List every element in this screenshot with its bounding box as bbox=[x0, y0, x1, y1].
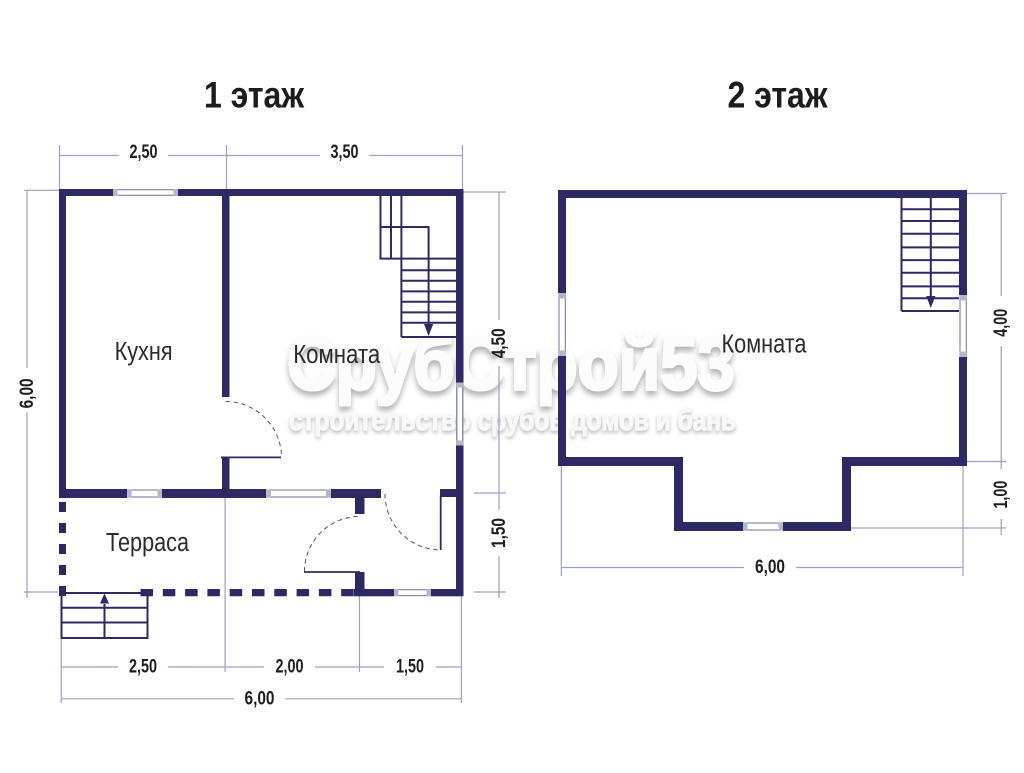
svg-text:Кухня: Кухня bbox=[115, 338, 173, 366]
svg-text:6,00: 6,00 bbox=[755, 556, 785, 578]
svg-text:строительство срубов домов и б: строительство срубов домов и бань bbox=[289, 404, 736, 437]
svg-text:6,00: 6,00 bbox=[16, 378, 38, 408]
svg-text:1,50: 1,50 bbox=[488, 518, 510, 548]
svg-text:Комната: Комната bbox=[293, 341, 381, 369]
svg-text:Комната: Комната bbox=[722, 331, 808, 359]
svg-text:4,50: 4,50 bbox=[488, 328, 510, 358]
svg-text:2,50: 2,50 bbox=[130, 141, 158, 163]
svg-text:2,00: 2,00 bbox=[276, 656, 304, 678]
svg-text:1,50: 1,50 bbox=[396, 656, 424, 678]
svg-text:2 этаж: 2 этаж bbox=[728, 75, 829, 116]
svg-text:1,00: 1,00 bbox=[990, 480, 1012, 508]
svg-text:Терраса: Терраса bbox=[106, 529, 190, 557]
svg-text:1 этаж: 1 этаж bbox=[204, 75, 305, 116]
svg-text:3,50: 3,50 bbox=[331, 141, 359, 163]
svg-text:4,00: 4,00 bbox=[990, 309, 1012, 337]
svg-text:6,00: 6,00 bbox=[245, 688, 275, 710]
svg-text:2,50: 2,50 bbox=[129, 656, 157, 678]
